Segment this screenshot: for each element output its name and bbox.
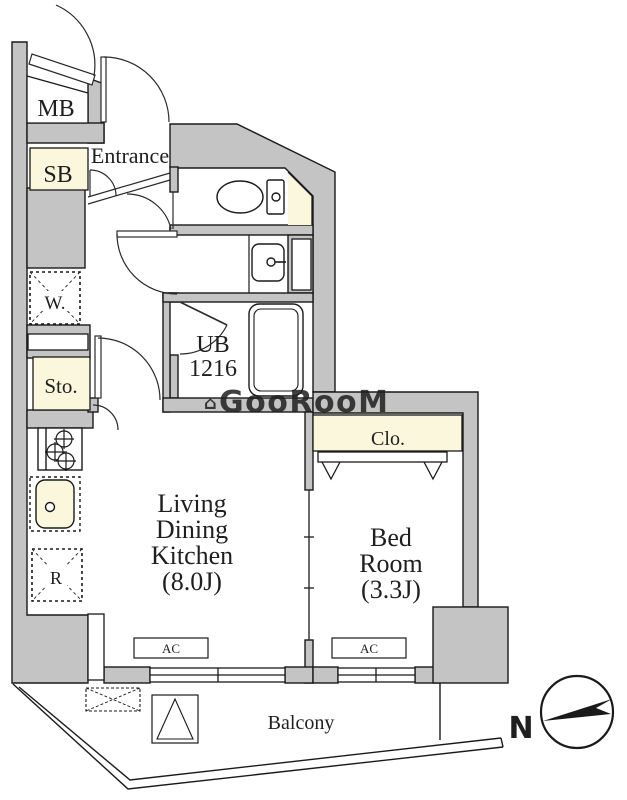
toilet-door [127,192,173,229]
entrance-door [101,57,169,122]
counter-box [28,334,88,350]
bedroom-window [338,668,415,682]
wall-corr-4 [170,355,178,398]
wall-wash-bottom [163,293,313,302]
bathtub-icon [249,304,303,396]
label-balcony: Balcony [268,712,335,734]
label-ac-ldk: AC [162,641,180,656]
mb-door [29,5,95,85]
watermark-text: GooRooM [219,385,390,420]
floorplan-svg: ⌂ GooRooM MB SB Entrance W. Sto. R UB 12… [0,0,627,800]
closet-hanger-right [424,462,442,479]
wall-below-sb [27,188,85,268]
label-ldk-2: Dining [156,515,228,544]
label-ldk-3: Kitchen [151,541,233,570]
wall-toilet-bottom [170,225,313,235]
label-bedroom-2: Room [359,549,423,578]
ps-shaft [292,239,311,290]
floorplan-image: ⌂ GooRooM MB SB Entrance W. Sto. R UB 12… [0,0,627,800]
closet-hanger-left [322,462,340,479]
label-entrance: Entrance [91,143,169,168]
balcony-door [88,614,104,680]
wall-bed-bottom-l [313,667,338,683]
toilet-icon [217,180,284,214]
entrance-step [88,173,170,204]
evacuation-hatch-icon [152,695,198,743]
wall-ldk-bottom-r [285,667,313,683]
label-storage: Sto. [44,374,77,398]
label-ub-1: UB [196,332,229,358]
label-ldk-4: (8.0J) [162,567,222,596]
kitchen-sink-icon [36,480,74,528]
label-ac-bedroom: AC [360,641,378,656]
washroom-door [117,231,177,294]
label-ldk-1: Living [157,489,226,518]
wall-corr-1 [170,167,178,192]
wall-ub-left [163,293,170,412]
wall-mb-bottom [27,123,104,143]
label-ub-2: 1216 [189,356,237,382]
balcony-louver-box [86,688,140,711]
watermark: ⌂ GooRooM [204,385,390,420]
wall-ldk-bottom-l [104,667,150,683]
hallway-door [95,336,160,400]
ldk-window [150,668,285,682]
label-washer: W. [45,293,66,314]
closet-track [318,452,447,462]
label-bedroom-1: Bed [370,523,412,552]
label-north: N [508,711,533,746]
wall-ldk-bed-top [305,412,313,490]
sink-icon [249,235,286,293]
watermark-house-icon: ⌂ [204,393,217,414]
sliding-door [304,490,314,640]
label-bedroom-3: (3.3J) [361,575,421,604]
wall-below-sto [27,410,93,428]
label-mb: MB [37,96,74,122]
compass-icon: N [508,676,613,748]
wall-block-br [433,607,508,683]
label-sb: SB [43,162,72,188]
label-closet: Clo. [371,428,405,450]
label-fridge: R [50,568,62,588]
stove-icon [38,428,82,471]
